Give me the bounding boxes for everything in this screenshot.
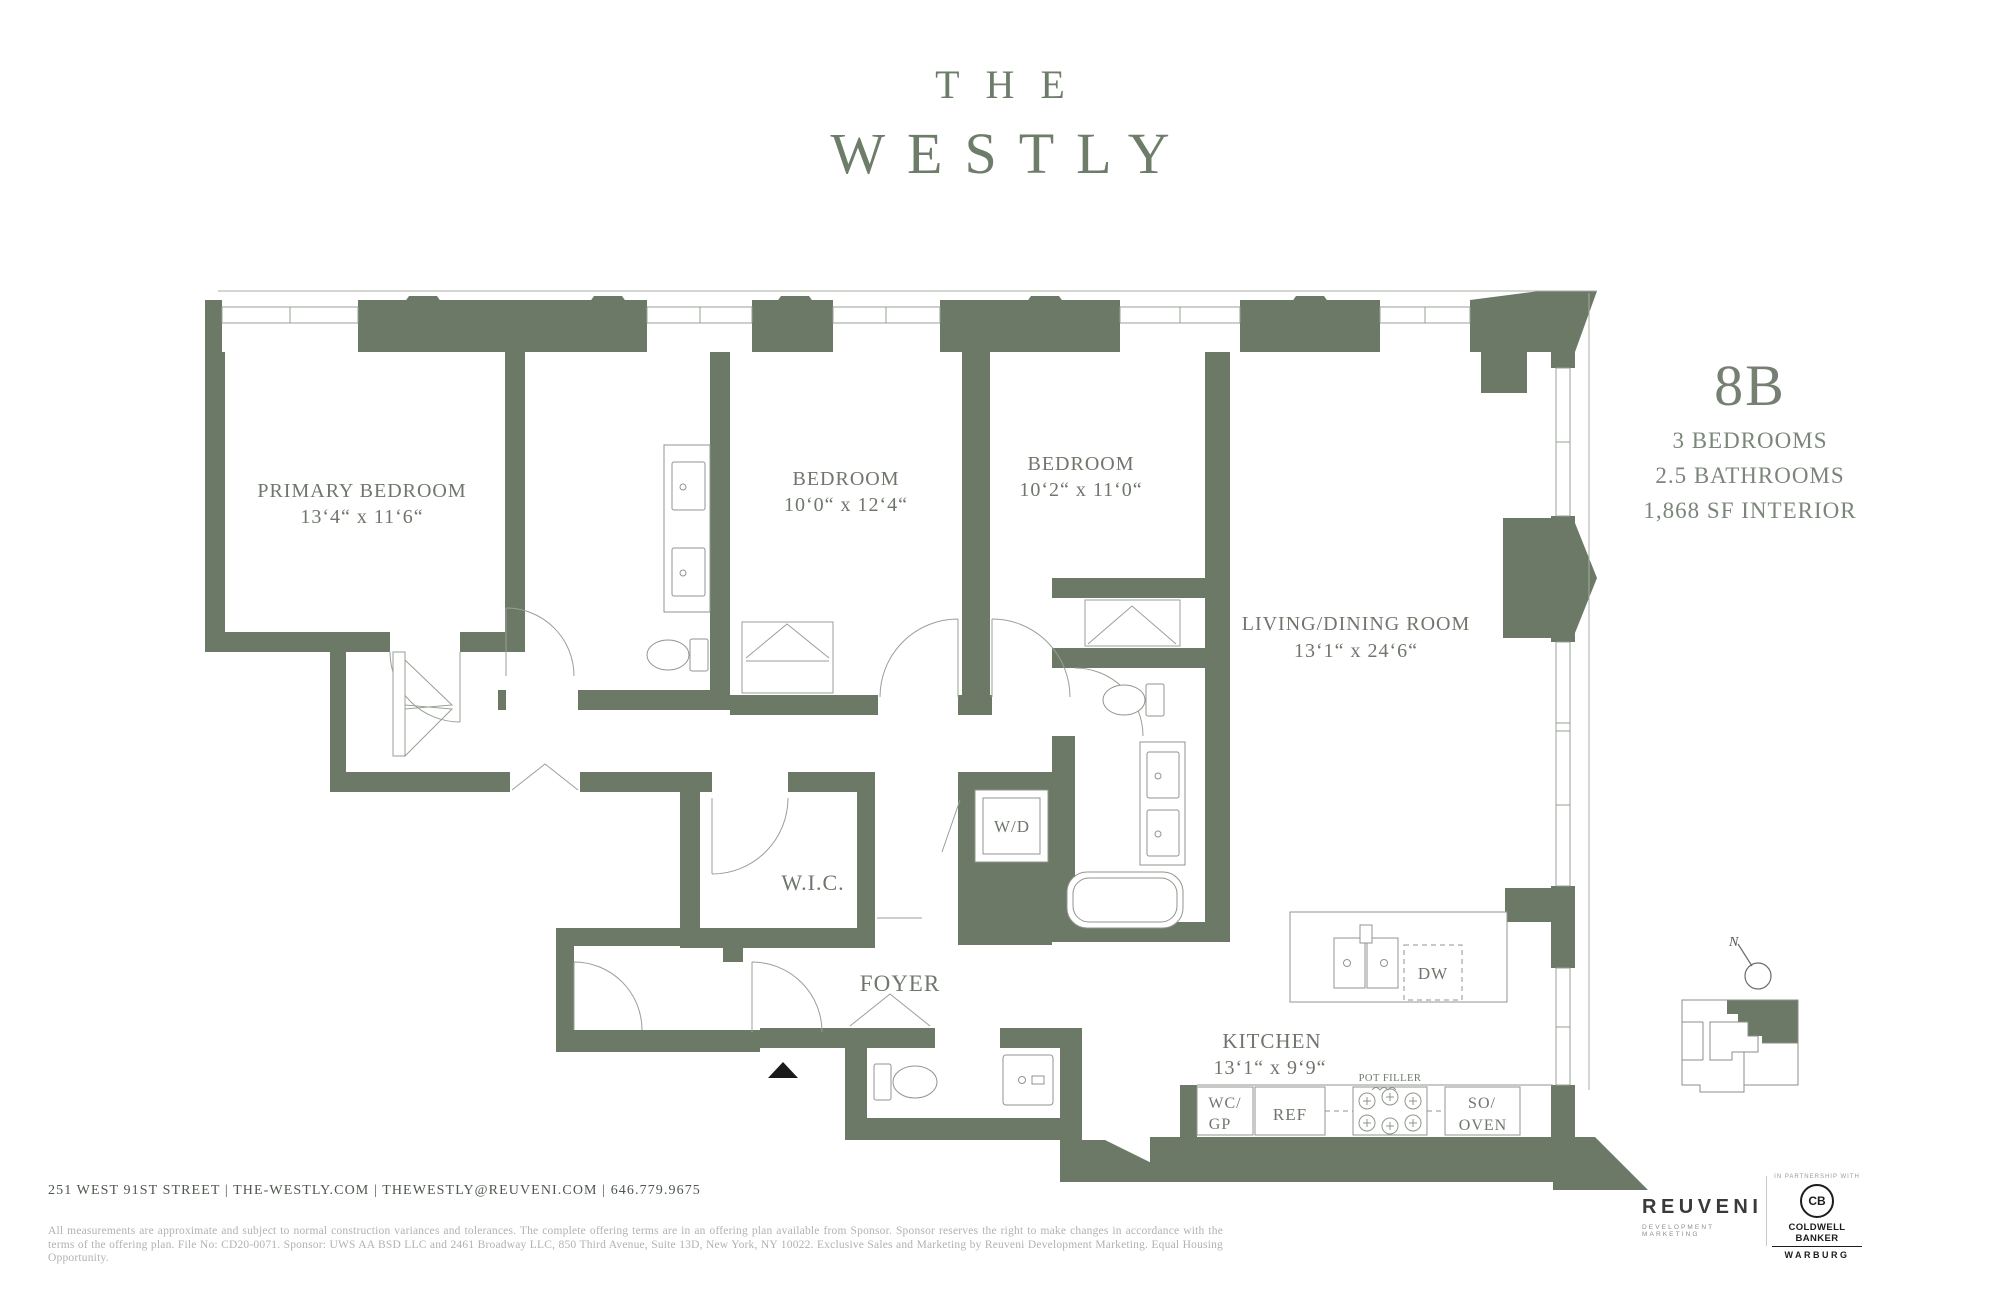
entry-arrow (768, 1062, 798, 1078)
bedroom-a-label: BEDROOM (792, 468, 899, 490)
wic-label: W.I.C. (781, 870, 844, 895)
bath2-toilet (1103, 685, 1145, 715)
primary-bedroom-label: PRIMARY BEDROOM (257, 480, 466, 502)
living-dining-dims: 13‘1“ x 24‘6“ (1294, 640, 1418, 662)
bedroom-a-dims: 10‘0“ x 12‘4“ (784, 494, 908, 516)
primary-toilet (647, 640, 689, 670)
foyer-label: FOYER (860, 971, 940, 996)
kitchen-dims: 13‘1“ x 9‘9“ (1213, 1057, 1326, 1079)
washer-dryer-label: W/D (994, 817, 1030, 836)
closet-door (574, 962, 642, 1030)
powder-toilet (893, 1066, 937, 1098)
reuveni-tagline: DEVELOPMENT MARKETING (1642, 1224, 1762, 1238)
building-logo: THE WESTLY (0, 62, 2000, 186)
compass-n-label: N (1728, 935, 1739, 950)
reuveni-wordmark: REUVENI (1642, 1196, 1762, 1219)
coldwell-banker-wordmark: COLDWELL BANKER (1772, 1222, 1862, 1247)
coldwell-banker-logo: IN PARTNERSHIP WITH CB COLDWELL BANKER W… (1772, 1174, 1862, 1260)
contact-line: 251 WEST 91ST STREET | THE-WESTLY.COM | … (48, 1183, 701, 1199)
so-oven-label-2: OVEN (1459, 1117, 1507, 1134)
warburg-wordmark: WARBURG (1772, 1250, 1862, 1260)
bathtub (1067, 872, 1183, 928)
wd-door-leaf (942, 800, 960, 852)
wc-gp-label-1: WC/ (1208, 1095, 1241, 1112)
bedroom-b-dims: 10‘2“ x 11‘0“ (1019, 479, 1142, 501)
legal-disclaimer: All measurements are approximate and sub… (48, 1225, 1223, 1266)
logo-divider (1766, 1176, 1767, 1246)
keyplan (1682, 1000, 1798, 1092)
pot-filler-label: POT FILLER (1359, 1073, 1422, 1084)
reuveni-logo: REUVENI DEVELOPMENT MARKETING (1642, 1196, 1762, 1238)
logo-line-westly: WESTLY (0, 122, 2000, 186)
windows-right (1549, 368, 1577, 1085)
entry-door (752, 962, 822, 1032)
living-dining-label: LIVING/DINING ROOM (1242, 613, 1471, 635)
cb-monogram: CB (1808, 1194, 1825, 1208)
powder-sink (1003, 1055, 1053, 1105)
primary-bedroom-dims: 13‘4“ x 11‘6“ (300, 506, 423, 528)
ref-label: REF (1273, 1105, 1307, 1124)
wc-gp-label-2: GP (1209, 1116, 1231, 1133)
kitchen-label: KITCHEN (1222, 1029, 1321, 1053)
walls (205, 291, 1650, 1190)
wic-door (712, 798, 788, 874)
floorplan-sheet: THE WESTLY 8B 3 BEDROOMS 2.5 BATHROOMS 1… (0, 0, 2000, 1294)
logo-line-the: THE (0, 62, 2000, 108)
bedroom-a-door (880, 619, 958, 697)
cb-ring-icon: CB (1800, 1184, 1834, 1218)
floorplan-drawing: PRIMARY BEDROOM 13‘4“ x 11‘6“ BEDROOM 10… (150, 230, 1850, 1190)
partnership-label: IN PARTNERSHIP WITH (1772, 1174, 1862, 1180)
bedroom-b-label: BEDROOM (1027, 453, 1134, 475)
so-oven-label-1: SO/ (1468, 1095, 1496, 1112)
compass-icon: N (1728, 935, 1771, 989)
dishwasher-label: DW (1418, 964, 1448, 983)
